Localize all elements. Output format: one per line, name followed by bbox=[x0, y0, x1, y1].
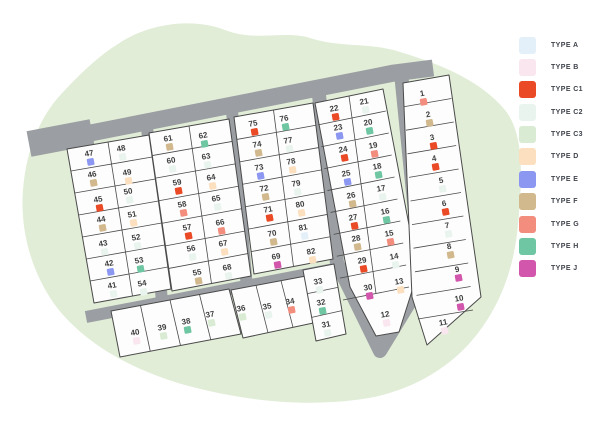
type-swatch-A bbox=[519, 37, 536, 54]
type-marker-D bbox=[130, 219, 138, 227]
type-marker-E bbox=[87, 158, 95, 166]
type-marker-C3 bbox=[160, 332, 168, 340]
type-marker-C1 bbox=[96, 204, 104, 212]
type-marker-D bbox=[125, 177, 133, 185]
type-marker-F bbox=[270, 238, 278, 246]
type-swatch-C1 bbox=[519, 81, 536, 98]
legend-item-A[interactable]: TYPE A bbox=[519, 36, 583, 54]
type-marker-J bbox=[274, 261, 282, 269]
site-plan-widget: 1234567891011121314151617181920212223242… bbox=[0, 0, 600, 424]
type-marker-B bbox=[441, 327, 449, 335]
type-marker-C2 bbox=[119, 153, 127, 161]
type-marker-F bbox=[99, 224, 107, 232]
type-marker-D bbox=[397, 286, 405, 294]
type-marker-H bbox=[375, 171, 383, 179]
legend-label: TYPE E bbox=[551, 176, 578, 183]
type-marker-G bbox=[218, 227, 226, 235]
type-marker-G bbox=[288, 306, 296, 314]
type-marker-F bbox=[426, 119, 434, 127]
type-swatch-G bbox=[519, 216, 536, 233]
type-swatch-H bbox=[519, 238, 536, 255]
type-marker-F bbox=[90, 179, 98, 187]
type-marker-C2 bbox=[110, 290, 118, 298]
legend-item-C2[interactable]: TYPE C2 bbox=[519, 103, 583, 121]
type-marker-J bbox=[366, 292, 374, 300]
legend-item-C1[interactable]: TYPE C1 bbox=[519, 81, 583, 99]
type-marker-H bbox=[282, 123, 290, 131]
type-marker-C2 bbox=[101, 248, 109, 256]
legend-label: TYPE C2 bbox=[551, 109, 583, 116]
type-marker-F bbox=[255, 149, 263, 157]
type-marker-J bbox=[457, 303, 465, 311]
type-marker-A bbox=[301, 232, 309, 240]
type-marker-C2 bbox=[316, 286, 324, 294]
type-marker-G bbox=[387, 238, 395, 246]
type-marker-C1 bbox=[432, 163, 440, 171]
type-marker-C2 bbox=[379, 193, 387, 201]
type-marker-C2 bbox=[439, 185, 447, 193]
legend-item-B[interactable]: TYPE B bbox=[519, 58, 583, 76]
type-marker-C1 bbox=[341, 154, 349, 162]
type-marker-C2 bbox=[294, 188, 302, 196]
type-marker-C1 bbox=[430, 142, 438, 150]
type-swatch-B bbox=[519, 59, 536, 76]
type-marker-F bbox=[447, 251, 455, 259]
type-marker-C2 bbox=[189, 253, 197, 261]
type-marker-C1 bbox=[442, 208, 450, 216]
type-marker-H bbox=[319, 307, 327, 315]
type-marker-G bbox=[371, 150, 379, 158]
type-marker-J bbox=[455, 274, 463, 282]
type-marker-D bbox=[209, 182, 217, 190]
legend-item-G[interactable]: TYPE G bbox=[519, 215, 583, 233]
type-marker-C2 bbox=[265, 311, 273, 319]
type-marker-C1 bbox=[332, 113, 340, 121]
type-marker-C1 bbox=[351, 222, 359, 230]
legend-item-C3[interactable]: TYPE C3 bbox=[519, 126, 583, 144]
site-plan-map: 1234567891011121314151617181920212223242… bbox=[0, 0, 600, 424]
type-marker-D bbox=[309, 256, 317, 264]
legend-item-D[interactable]: TYPE D bbox=[519, 148, 583, 166]
type-marker-G bbox=[180, 209, 188, 217]
type-marker-F bbox=[195, 277, 203, 285]
legend: TYPE ATYPE BTYPE C1TYPE C2TYPE C3TYPE DT… bbox=[519, 36, 583, 278]
type-marker-E bbox=[344, 178, 352, 186]
legend-label: TYPE D bbox=[551, 153, 579, 160]
type-swatch-E bbox=[519, 171, 536, 188]
legend-item-E[interactable]: TYPE E bbox=[519, 170, 583, 188]
type-marker-B bbox=[383, 319, 391, 327]
type-swatch-D bbox=[519, 148, 536, 165]
legend-label: TYPE C3 bbox=[551, 131, 583, 138]
type-marker-F bbox=[354, 243, 362, 251]
type-marker-B bbox=[133, 337, 141, 345]
type-marker-H bbox=[366, 127, 374, 135]
type-marker-C3 bbox=[208, 319, 216, 327]
type-marker-C2 bbox=[286, 145, 294, 153]
type-marker-E bbox=[107, 268, 115, 276]
legend-label: TYPE G bbox=[551, 221, 579, 228]
type-marker-C2 bbox=[134, 242, 142, 250]
type-marker-C2 bbox=[204, 161, 212, 169]
type-marker-F bbox=[166, 143, 174, 151]
type-marker-E bbox=[336, 132, 344, 140]
type-marker-C3 bbox=[239, 313, 247, 321]
type-marker-C2 bbox=[140, 288, 148, 296]
type-marker-C1 bbox=[266, 214, 274, 222]
legend-item-H[interactable]: TYPE H bbox=[519, 238, 583, 256]
type-swatch-C2 bbox=[519, 104, 536, 121]
type-swatch-F bbox=[519, 193, 536, 210]
type-marker-C2 bbox=[445, 230, 453, 238]
type-marker-C2 bbox=[225, 272, 233, 280]
legend-label: TYPE H bbox=[551, 243, 579, 250]
legend-label: TYPE J bbox=[551, 265, 578, 272]
type-marker-C2 bbox=[324, 329, 332, 337]
type-marker-C2 bbox=[126, 196, 134, 204]
type-marker-F bbox=[262, 193, 270, 201]
type-swatch-J bbox=[519, 260, 536, 277]
type-marker-E bbox=[257, 172, 265, 180]
type-marker-G bbox=[420, 98, 428, 106]
legend-item-F[interactable]: TYPE F bbox=[519, 193, 583, 211]
type-marker-C1 bbox=[175, 187, 183, 195]
type-marker-C2 bbox=[392, 261, 400, 269]
type-marker-C1 bbox=[251, 128, 259, 136]
type-marker-C2 bbox=[214, 203, 222, 211]
type-marker-F bbox=[349, 200, 357, 208]
type-marker-C1 bbox=[360, 265, 368, 273]
legend-item-J[interactable]: TYPE J bbox=[519, 260, 583, 278]
type-swatch-C3 bbox=[519, 126, 536, 143]
type-marker-H bbox=[137, 265, 145, 273]
type-marker-D bbox=[298, 209, 306, 217]
legend-label: TYPE A bbox=[551, 42, 578, 49]
legend-label: TYPE B bbox=[551, 64, 579, 71]
type-marker-H bbox=[184, 326, 192, 334]
type-marker-H bbox=[383, 216, 391, 224]
type-marker-C2 bbox=[169, 165, 177, 173]
legend-label: TYPE C1 bbox=[551, 86, 583, 93]
type-marker-C2 bbox=[362, 106, 370, 114]
type-marker-C1 bbox=[185, 232, 193, 240]
type-marker-H bbox=[201, 140, 209, 148]
legend-label: TYPE F bbox=[551, 198, 578, 205]
type-marker-D bbox=[221, 248, 229, 256]
type-marker-D bbox=[289, 166, 297, 174]
